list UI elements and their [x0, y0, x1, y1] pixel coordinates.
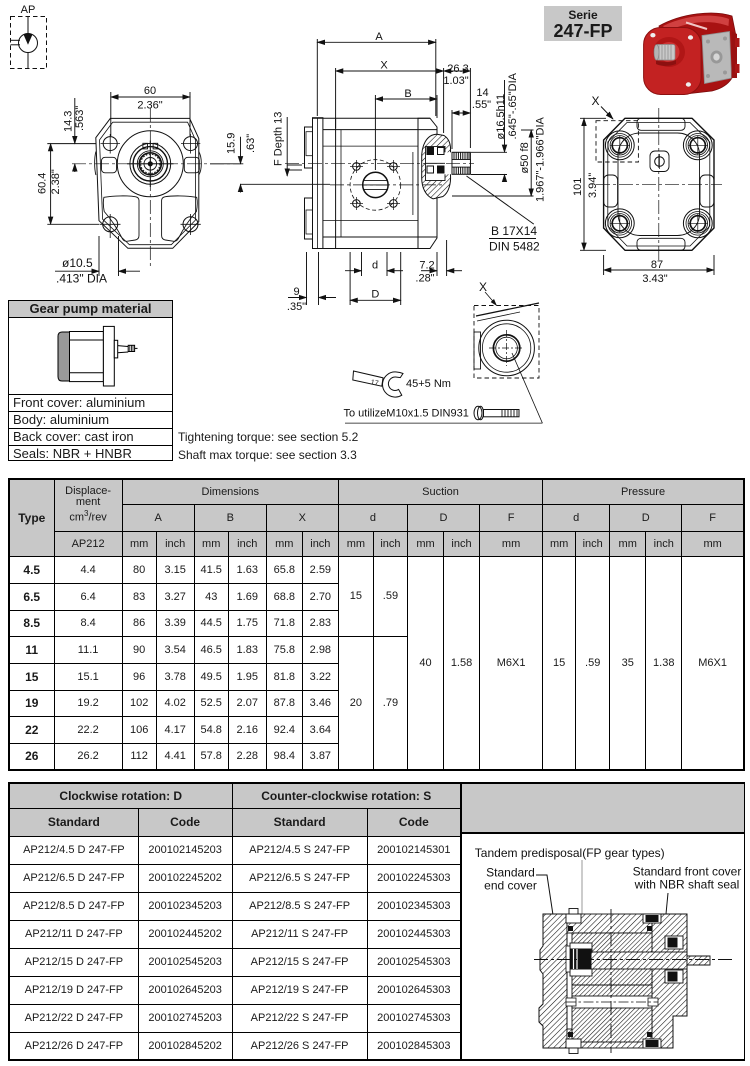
svg-text:.413" DIA: .413" DIA	[56, 272, 107, 286]
svg-text:14.3: 14.3	[63, 111, 75, 132]
svg-text:Standard front cover: Standard front cover	[633, 865, 742, 879]
svg-text:with NBR shaft seal: with NBR shaft seal	[634, 878, 740, 892]
svg-text:7.2: 7.2	[419, 260, 434, 272]
svg-text:X: X	[479, 280, 487, 294]
svg-text:D: D	[371, 289, 379, 301]
svg-text:end cover: end cover	[484, 879, 537, 893]
svg-text:.63": .63"	[245, 134, 257, 153]
svg-text:1.03": 1.03"	[443, 75, 468, 87]
svg-text:9: 9	[293, 286, 299, 298]
svg-text:87: 87	[651, 259, 663, 271]
svg-text:X: X	[380, 60, 388, 72]
svg-text:15.9: 15.9	[226, 133, 238, 154]
svg-text:B: B	[404, 88, 411, 100]
svg-text:.35": .35"	[287, 301, 306, 313]
svg-text:101: 101	[572, 178, 584, 196]
svg-text:45+5 Nm: 45+5 Nm	[406, 378, 451, 390]
svg-text:3.94": 3.94"	[587, 173, 599, 198]
svg-text:2.36": 2.36"	[137, 100, 162, 112]
svg-text:2.38": 2.38"	[50, 169, 62, 194]
svg-text:ø10.5: ø10.5	[62, 256, 93, 270]
svg-text:ø16.5h11: ø16.5h11	[495, 94, 507, 140]
svg-text:DIN 5482: DIN 5482	[489, 240, 540, 254]
svg-text:A: A	[375, 31, 383, 43]
svg-text:d: d	[372, 260, 378, 272]
svg-text:1.967"-1.966"DIA: 1.967"-1.966"DIA	[535, 116, 547, 202]
svg-text:60: 60	[144, 85, 156, 97]
svg-text:Standard: Standard	[486, 866, 535, 880]
svg-text:To utilizeM10x1.5 DIN931: To utilizeM10x1.5 DIN931	[344, 408, 469, 420]
svg-text:3.43": 3.43"	[642, 273, 667, 285]
svg-text:17: 17	[370, 379, 379, 387]
svg-text:.645"-.65"DIA: .645"-.65"DIA	[507, 72, 519, 139]
svg-text:.28": .28"	[415, 273, 434, 285]
svg-text:26.3: 26.3	[447, 63, 468, 75]
svg-text:AP: AP	[21, 4, 36, 16]
svg-text:60.4: 60.4	[37, 173, 49, 194]
svg-text:.563": .563"	[74, 106, 86, 131]
svg-text:.55": .55"	[472, 99, 491, 111]
svg-text:ø50 f8: ø50 f8	[519, 142, 531, 173]
svg-text:B 17X14: B 17X14	[491, 224, 537, 238]
svg-text:X: X	[592, 94, 600, 108]
svg-text:Tandem predisposal(FP gear typ: Tandem predisposal(FP gear types)	[475, 846, 665, 860]
svg-text:F Depth 13: F Depth 13	[273, 112, 285, 166]
svg-text:14: 14	[476, 87, 488, 99]
